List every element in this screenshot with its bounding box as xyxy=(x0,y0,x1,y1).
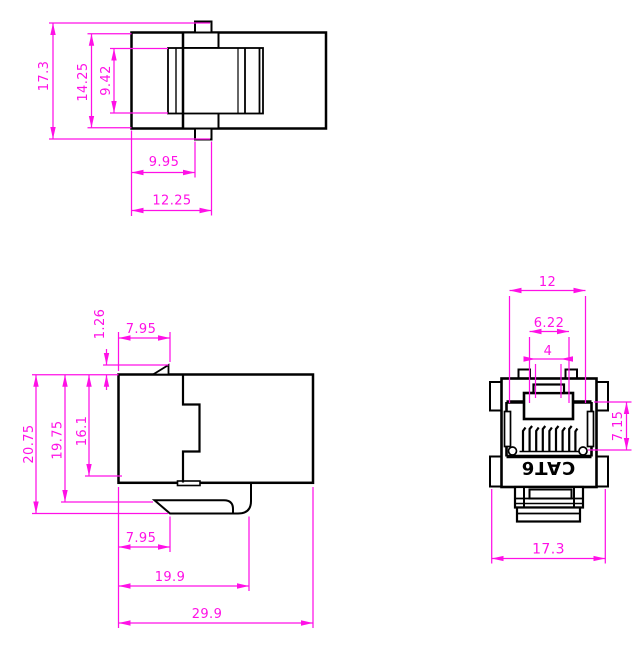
dim-text: 17.3 xyxy=(532,542,565,558)
front-view-ear-bottom-right xyxy=(597,457,609,487)
front-view-ear-top-left xyxy=(490,382,502,411)
front-view-boss-right xyxy=(579,447,587,455)
dim-text: 19.9 xyxy=(155,570,186,585)
top-view-lower-tab xyxy=(195,129,212,140)
top-view-lower-tab-base xyxy=(183,113,219,129)
front-view-rail-right xyxy=(588,412,594,447)
top-view xyxy=(132,22,327,140)
dim-text: 17.3 xyxy=(37,61,52,92)
side-view-top-latch xyxy=(153,365,169,375)
side-view-bottom-tab xyxy=(178,481,201,486)
front-view-latch-window xyxy=(524,393,573,419)
product-label: CAT6 xyxy=(521,457,576,478)
front-view-tail-block xyxy=(517,508,580,522)
front-view-latch-step xyxy=(534,385,565,394)
dim-text: 9.42 xyxy=(99,65,114,96)
front-view-rail-left xyxy=(505,412,511,447)
dim-text: 1.26 xyxy=(93,309,108,340)
side-view-body-outline xyxy=(119,375,314,483)
drawing-canvas: CAT6 17.3 14.25 9.42 9.95 12.25 xyxy=(0,0,639,649)
technical-drawing: CAT6 17.3 14.25 9.42 9.95 12.25 xyxy=(0,0,639,649)
front-view-ear-top-right xyxy=(597,382,609,411)
dim-text: 9.95 xyxy=(149,155,180,170)
dim-text: 7.95 xyxy=(126,322,157,337)
dim-text: 6.22 xyxy=(534,316,565,331)
dim-text: 29.9 xyxy=(192,607,223,622)
dim-text: 16.1 xyxy=(75,416,90,447)
dim-text: 7.15 xyxy=(611,411,626,442)
dim-text: 20.75 xyxy=(22,424,37,463)
dim-text: 12 xyxy=(539,275,556,290)
top-view-upper-tab-base xyxy=(183,33,219,49)
front-view-ear-bottom-left xyxy=(490,457,502,487)
dim-text: 7.95 xyxy=(126,531,157,546)
dim-text: 14.25 xyxy=(76,62,91,101)
front-view-boss-left xyxy=(509,447,517,455)
dim-text: 19.75 xyxy=(51,420,66,459)
dim-text: 4 xyxy=(544,344,553,359)
side-view xyxy=(119,365,314,514)
front-view: CAT6 xyxy=(490,370,608,522)
dim-text: 12.25 xyxy=(152,194,191,209)
side-view-bottom-hook xyxy=(155,483,252,514)
